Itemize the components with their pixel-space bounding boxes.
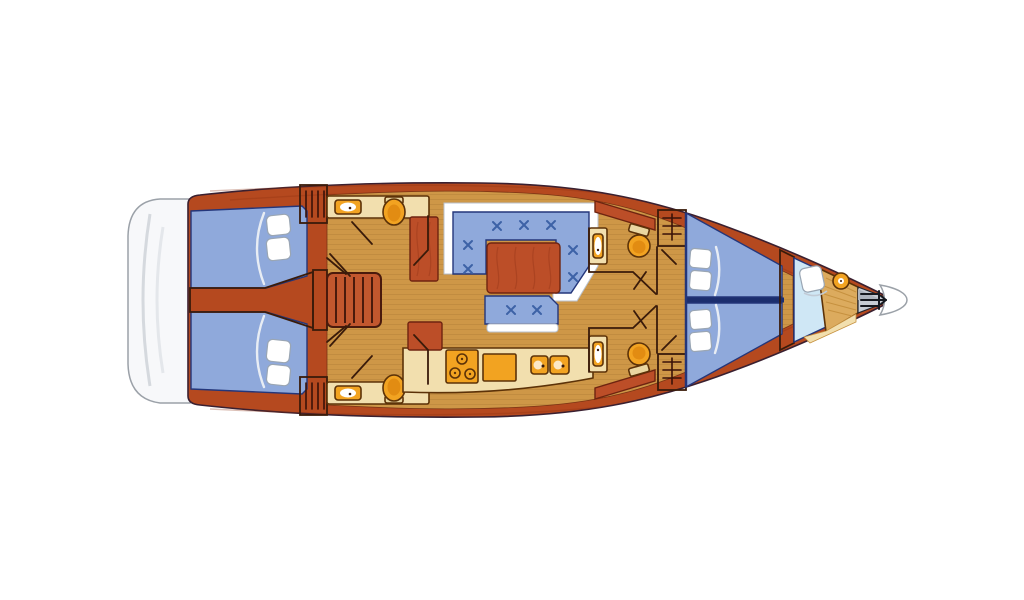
stern-swim-platform [128, 199, 190, 403]
sideboard [410, 217, 438, 281]
galley-worktop [483, 354, 516, 381]
pillow [266, 339, 291, 363]
pillow [266, 237, 291, 261]
boat-floorplan-canvas [0, 0, 1024, 600]
pillow [689, 331, 712, 352]
sink-fixture [593, 342, 603, 366]
toilet-fixture [383, 197, 405, 225]
stove-fixture [446, 350, 478, 383]
deck-plan-diagram [0, 0, 1024, 600]
aft-cabin-port [191, 206, 307, 288]
toilet-fixture [628, 223, 650, 257]
salon-table [487, 243, 560, 293]
toilet-fixture [628, 343, 650, 377]
toilet-fixture [383, 375, 405, 403]
bow [858, 285, 907, 315]
salon-bench [485, 296, 558, 332]
windlass-icon [833, 273, 849, 289]
pillow [799, 265, 826, 293]
sink-fixture [335, 386, 361, 400]
sink-fixture [593, 234, 603, 258]
pillow [266, 364, 291, 386]
aft-cabin-starboard [191, 312, 307, 394]
pillow [689, 270, 712, 291]
sink-fixture [335, 200, 361, 214]
double-sink-fixture [531, 356, 569, 374]
pillow [689, 248, 712, 269]
pillow [266, 214, 291, 236]
pillow [689, 309, 712, 330]
